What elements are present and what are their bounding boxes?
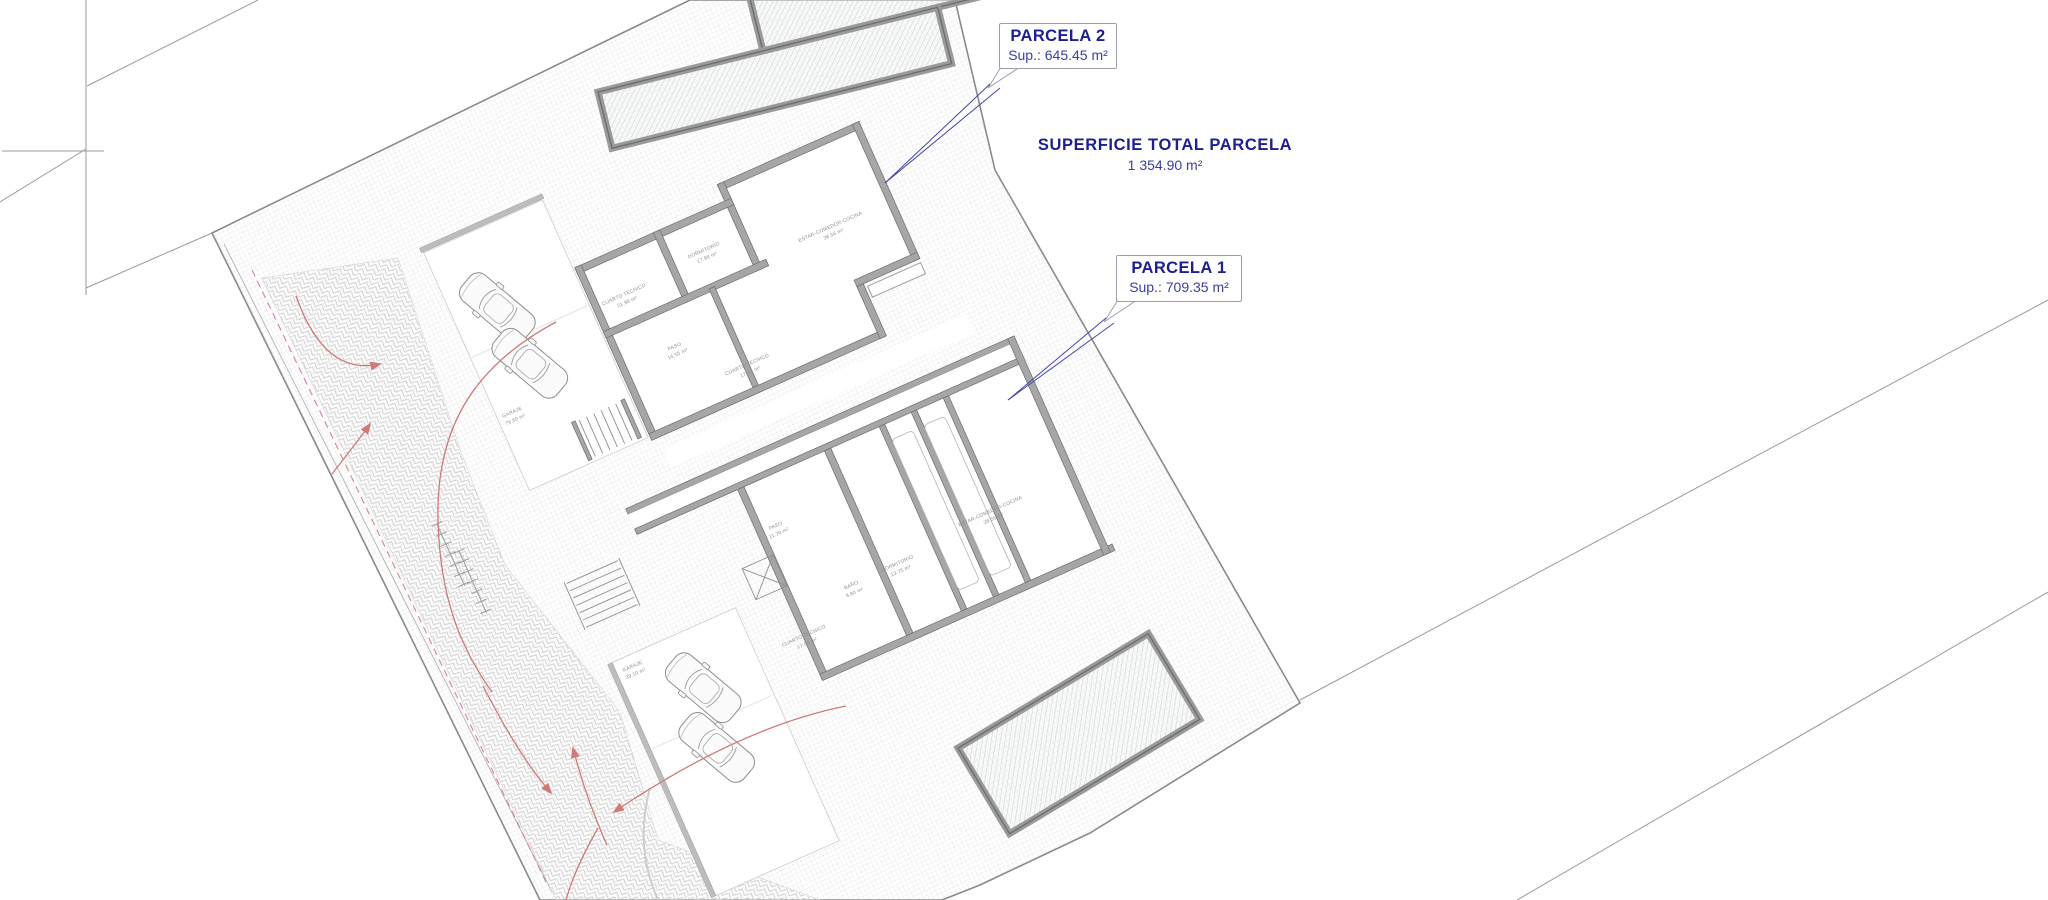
site-plan-drawing: ESTAR-COMEDOR-COCINA 38.56 m² DORMITORIO…: [0, 0, 2048, 900]
total-surface-label: SUPERFICIE TOTAL PARCELA 1 354.90 m²: [1020, 136, 1310, 173]
parcela1-title: PARCELA 1: [1121, 259, 1237, 278]
parcela2-title: PARCELA 2: [1004, 27, 1112, 46]
total-surface-title: SUPERFICIE TOTAL PARCELA: [1020, 136, 1310, 155]
callout-parcela1: PARCELA 1 Sup.: 709.35 m²: [1116, 255, 1242, 302]
parcela2-area: Sup.: 645.45 m²: [1004, 47, 1112, 63]
total-surface-value: 1 354.90 m²: [1020, 157, 1310, 173]
parcela1-area: Sup.: 709.35 m²: [1121, 279, 1237, 295]
site-plan-page: ESTAR-COMEDOR-COCINA 38.56 m² DORMITORIO…: [0, 0, 2048, 900]
callout-parcela2: PARCELA 2 Sup.: 645.45 m²: [999, 23, 1117, 69]
